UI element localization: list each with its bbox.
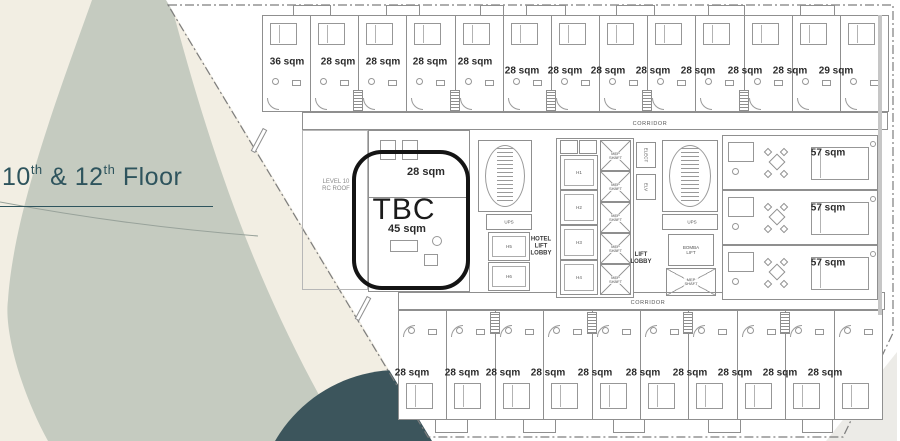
ups-left-label: UPS: [504, 220, 513, 225]
plan-labels: CORRIDOR CORRIDOR LEVEL 10 RC ROOF HOTEL…: [0, 0, 900, 441]
ups-right-label: UPS: [687, 220, 696, 225]
bomba-lift-label: BOMBA LIFT: [683, 245, 699, 255]
corridor-bottom-label: CORRIDOR: [631, 300, 666, 306]
lift-lobby-label: LIFT LOBBY: [631, 252, 652, 266]
roof-note-line1: LEVEL 10: [322, 179, 350, 186]
slide: 10th & 12th Floor 36 sqm28 sqm28 sqm28 s…: [0, 0, 900, 441]
elect-room-label: ELECT: [644, 148, 649, 163]
tbc-annotation-ring: [352, 150, 470, 290]
roof-note-line2: RC ROOF: [322, 186, 350, 193]
corridor-top-label: CORRIDOR: [633, 121, 668, 127]
roof-note: LEVEL 10 RC ROOF: [322, 179, 350, 193]
elv-room-label: ELV: [644, 183, 649, 191]
hotel-lift-lobby-label: HOTEL LIFT LOBBY: [531, 237, 552, 258]
